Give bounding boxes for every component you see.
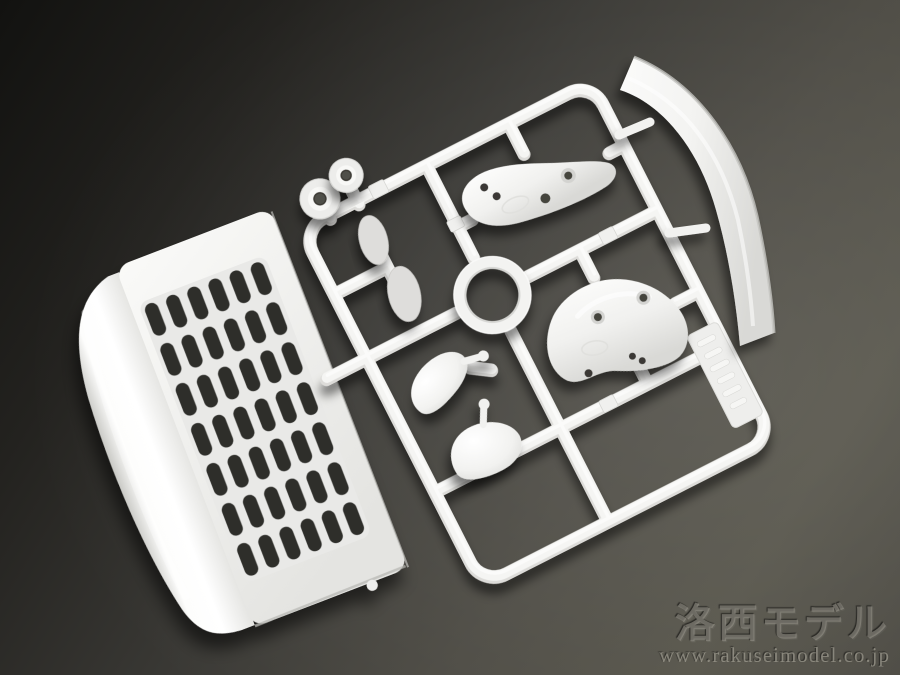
part-ring-grommet (441, 243, 545, 347)
blade-gate-stub (619, 122, 650, 135)
photo-canvas: 洛西モデル www.rakuseimodel.co.jp (0, 0, 900, 675)
sprue-photo (0, 0, 900, 675)
blade-gate-stub (669, 228, 706, 233)
part-mirror-housing-lower (443, 394, 526, 483)
watermark-brand: 洛西モデル (659, 603, 890, 645)
watermark-url: www.rakuseimodel.co.jp (659, 644, 890, 667)
watermark: 洛西モデル www.rakuseimodel.co.jp (659, 603, 890, 667)
